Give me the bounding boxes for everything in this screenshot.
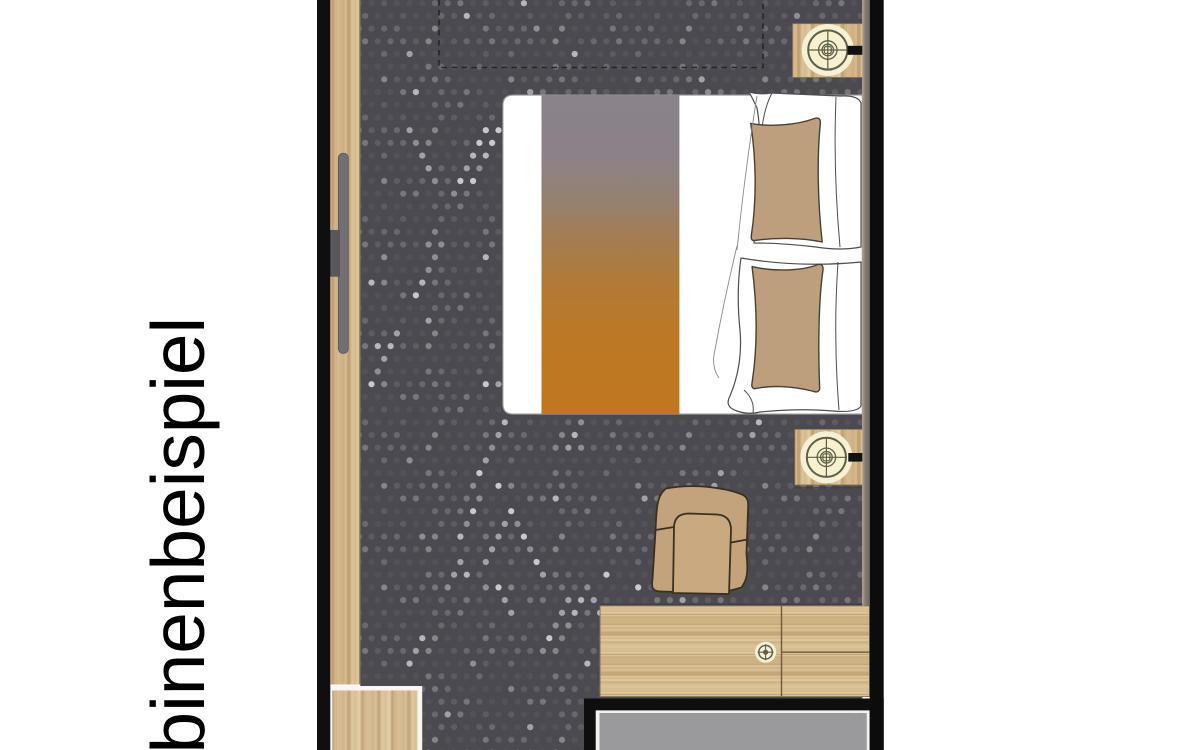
svg-text:Kabinenbeispiel: Kabinenbeispiel xyxy=(136,317,220,750)
